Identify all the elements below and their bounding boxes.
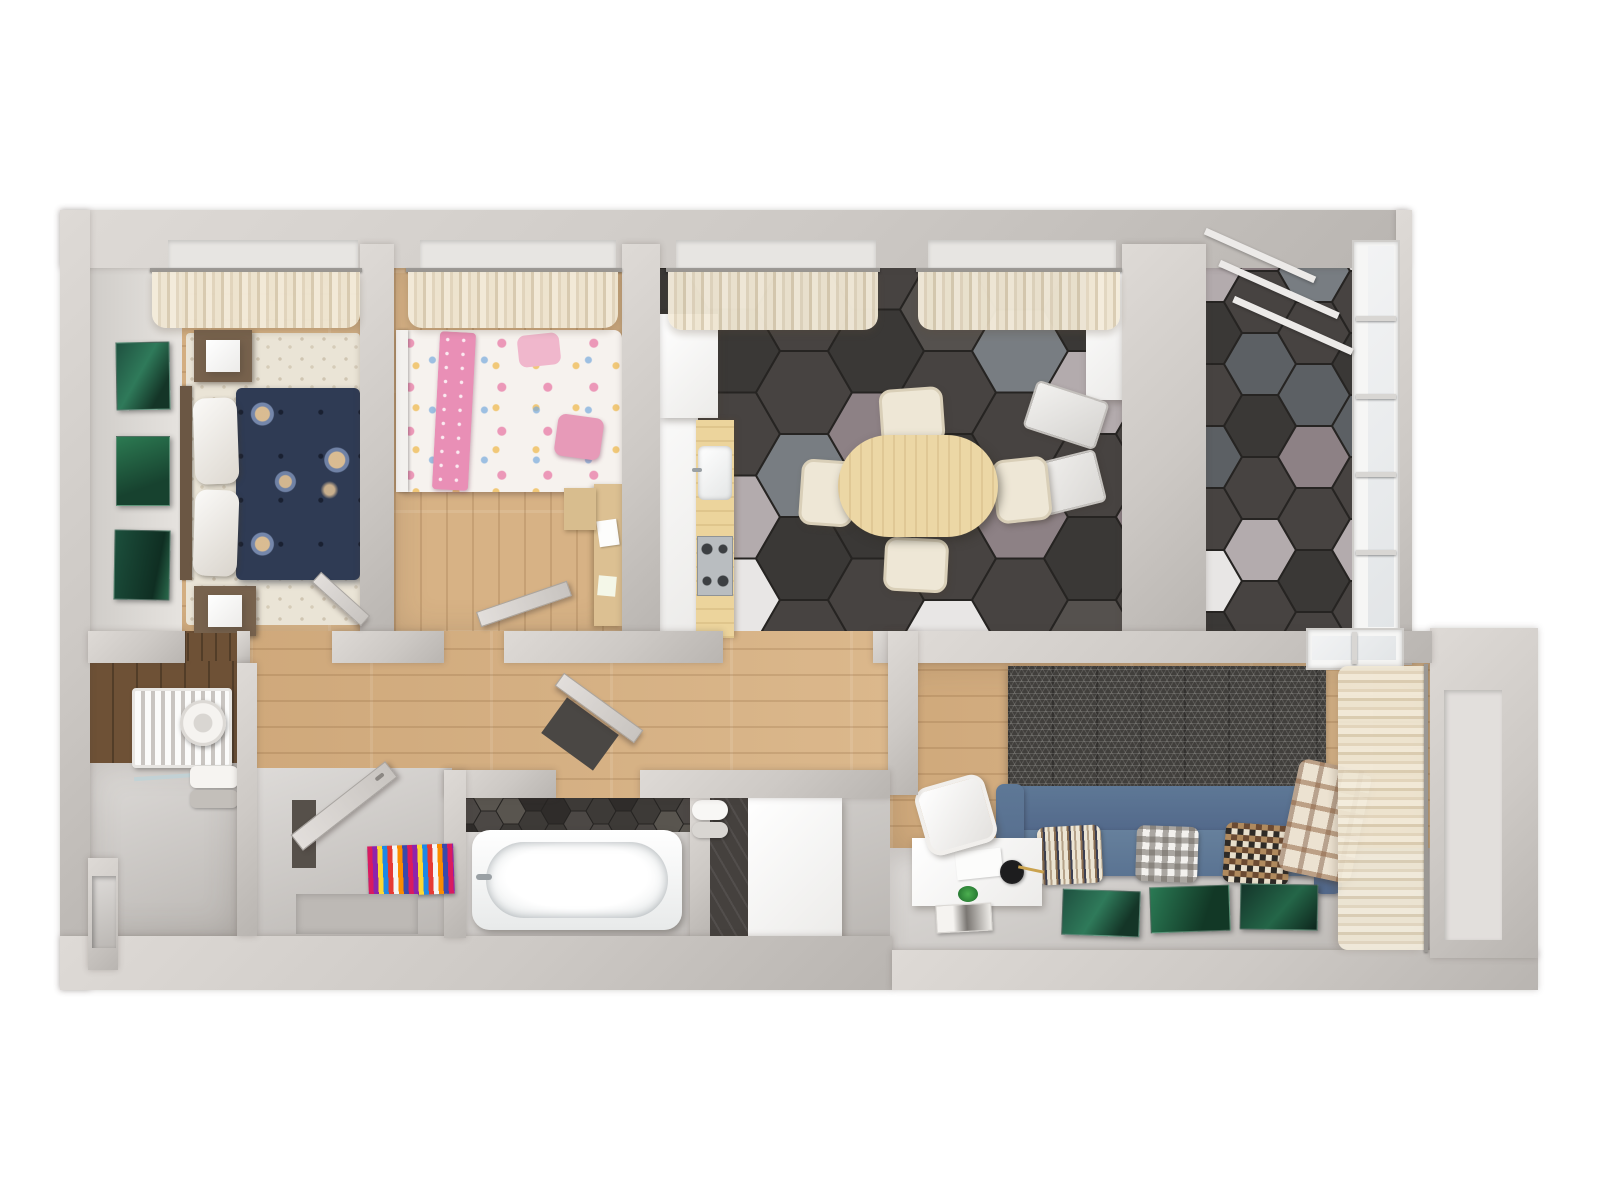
curtain-bed1	[152, 272, 360, 328]
kitchen-faucet	[692, 468, 702, 472]
washing-machine-cabinet	[748, 798, 842, 940]
master-bed-headboard	[180, 386, 192, 580]
wall-niche	[92, 876, 116, 948]
wall-kitchen-balcony	[1122, 244, 1206, 635]
dining-table	[838, 435, 998, 537]
bathroom-wall-tiles	[466, 798, 690, 832]
curtain-bed2	[408, 272, 618, 328]
dining-chair-right	[991, 455, 1053, 525]
living-balcony-window	[1306, 628, 1404, 670]
entrance-rug	[367, 844, 455, 897]
desk-plant	[958, 886, 978, 902]
wall-art-3	[113, 530, 170, 601]
floor-plan-canvas	[0, 0, 1600, 1200]
curtain-kitchen-2	[918, 272, 1120, 330]
bath-towel-2	[692, 822, 728, 838]
bathroom-top-wall-right	[640, 770, 890, 798]
outer-wall-bottom-left	[60, 936, 892, 990]
window-sill-bed2	[420, 240, 616, 268]
outer-wall-right-living	[1430, 628, 1538, 958]
mid-wall-stub-utility	[237, 631, 250, 663]
window-sill-kitchen-1	[676, 240, 876, 268]
bathtub-basin	[486, 842, 668, 918]
curtain-living-window	[1338, 666, 1424, 950]
kitchen-stove	[697, 536, 733, 596]
mid-wall-c	[504, 631, 723, 663]
master-bed-pillow-2	[193, 489, 240, 576]
living-floor-art-3	[1240, 883, 1319, 930]
kids-side-table	[564, 488, 596, 530]
mid-wall-a	[88, 631, 185, 663]
living-floor-art-1	[1061, 889, 1141, 938]
entrance-door-handle	[374, 772, 384, 781]
kids-bed-headboard	[396, 330, 408, 492]
bathtub	[472, 830, 682, 930]
kids-desk-paper-1	[596, 519, 619, 548]
wall-bed1-bed2	[360, 244, 394, 635]
entrance-mat	[296, 894, 418, 934]
wall-art-1	[115, 342, 170, 411]
balcony-mullion-3	[1356, 472, 1396, 477]
kids-bed-pillow	[553, 413, 604, 461]
kids-desk-paper-2	[597, 575, 617, 596]
curtain-kitchen-1	[668, 272, 878, 330]
desk-papers	[955, 848, 1004, 881]
towel-gray	[190, 790, 238, 808]
leaning-picture	[935, 903, 992, 934]
wall-art-2	[116, 436, 170, 506]
living-window-niche	[1444, 690, 1502, 940]
nightstand-top	[194, 330, 252, 382]
sofa-pillow-striped	[1037, 824, 1104, 885]
living-balcony-window-mullion	[1352, 632, 1357, 664]
nightstand-bottom-drawer	[208, 595, 242, 627]
curtain-rod-living	[1424, 664, 1428, 952]
kitchen-sink	[698, 446, 732, 500]
towel-white	[190, 766, 238, 788]
balcony-hex-floor	[1206, 240, 1352, 633]
kids-bed	[396, 330, 622, 492]
radiator-towel-ring	[180, 700, 226, 746]
balcony-mullion-4	[1356, 550, 1396, 555]
master-bed-duvet	[236, 388, 360, 580]
balcony-mullion-2	[1356, 394, 1396, 399]
living-floor-art-2	[1149, 885, 1231, 934]
kids-desk	[594, 484, 622, 626]
nightstand-bottom	[194, 586, 256, 636]
bathtub-faucet	[476, 874, 492, 880]
living-accent-rug	[1008, 666, 1326, 790]
master-bed-pillow-1	[193, 397, 240, 484]
balcony-mullion-1	[1356, 316, 1396, 321]
dining-chair-bottom	[883, 536, 950, 593]
sofa-pillow-gingham	[1135, 825, 1199, 883]
balcony-window-glass	[1368, 246, 1394, 627]
nightstand-top-drawer	[206, 340, 240, 372]
mid-wall-b	[332, 631, 444, 663]
outer-wall-left	[60, 210, 90, 990]
utility-right-wall	[237, 663, 257, 936]
desk-lamp	[1000, 860, 1024, 884]
utility-door-opening	[187, 633, 237, 661]
kids-bed-pillow-small	[516, 332, 561, 368]
window-sill-bed1	[168, 240, 358, 268]
window-sill-kitchen-2	[928, 240, 1116, 268]
corridor-stub-wall	[888, 631, 918, 795]
bath-towel-1	[692, 800, 728, 820]
balcony-window-band	[1352, 240, 1400, 637]
wall-bed2-kitchen	[622, 244, 660, 635]
